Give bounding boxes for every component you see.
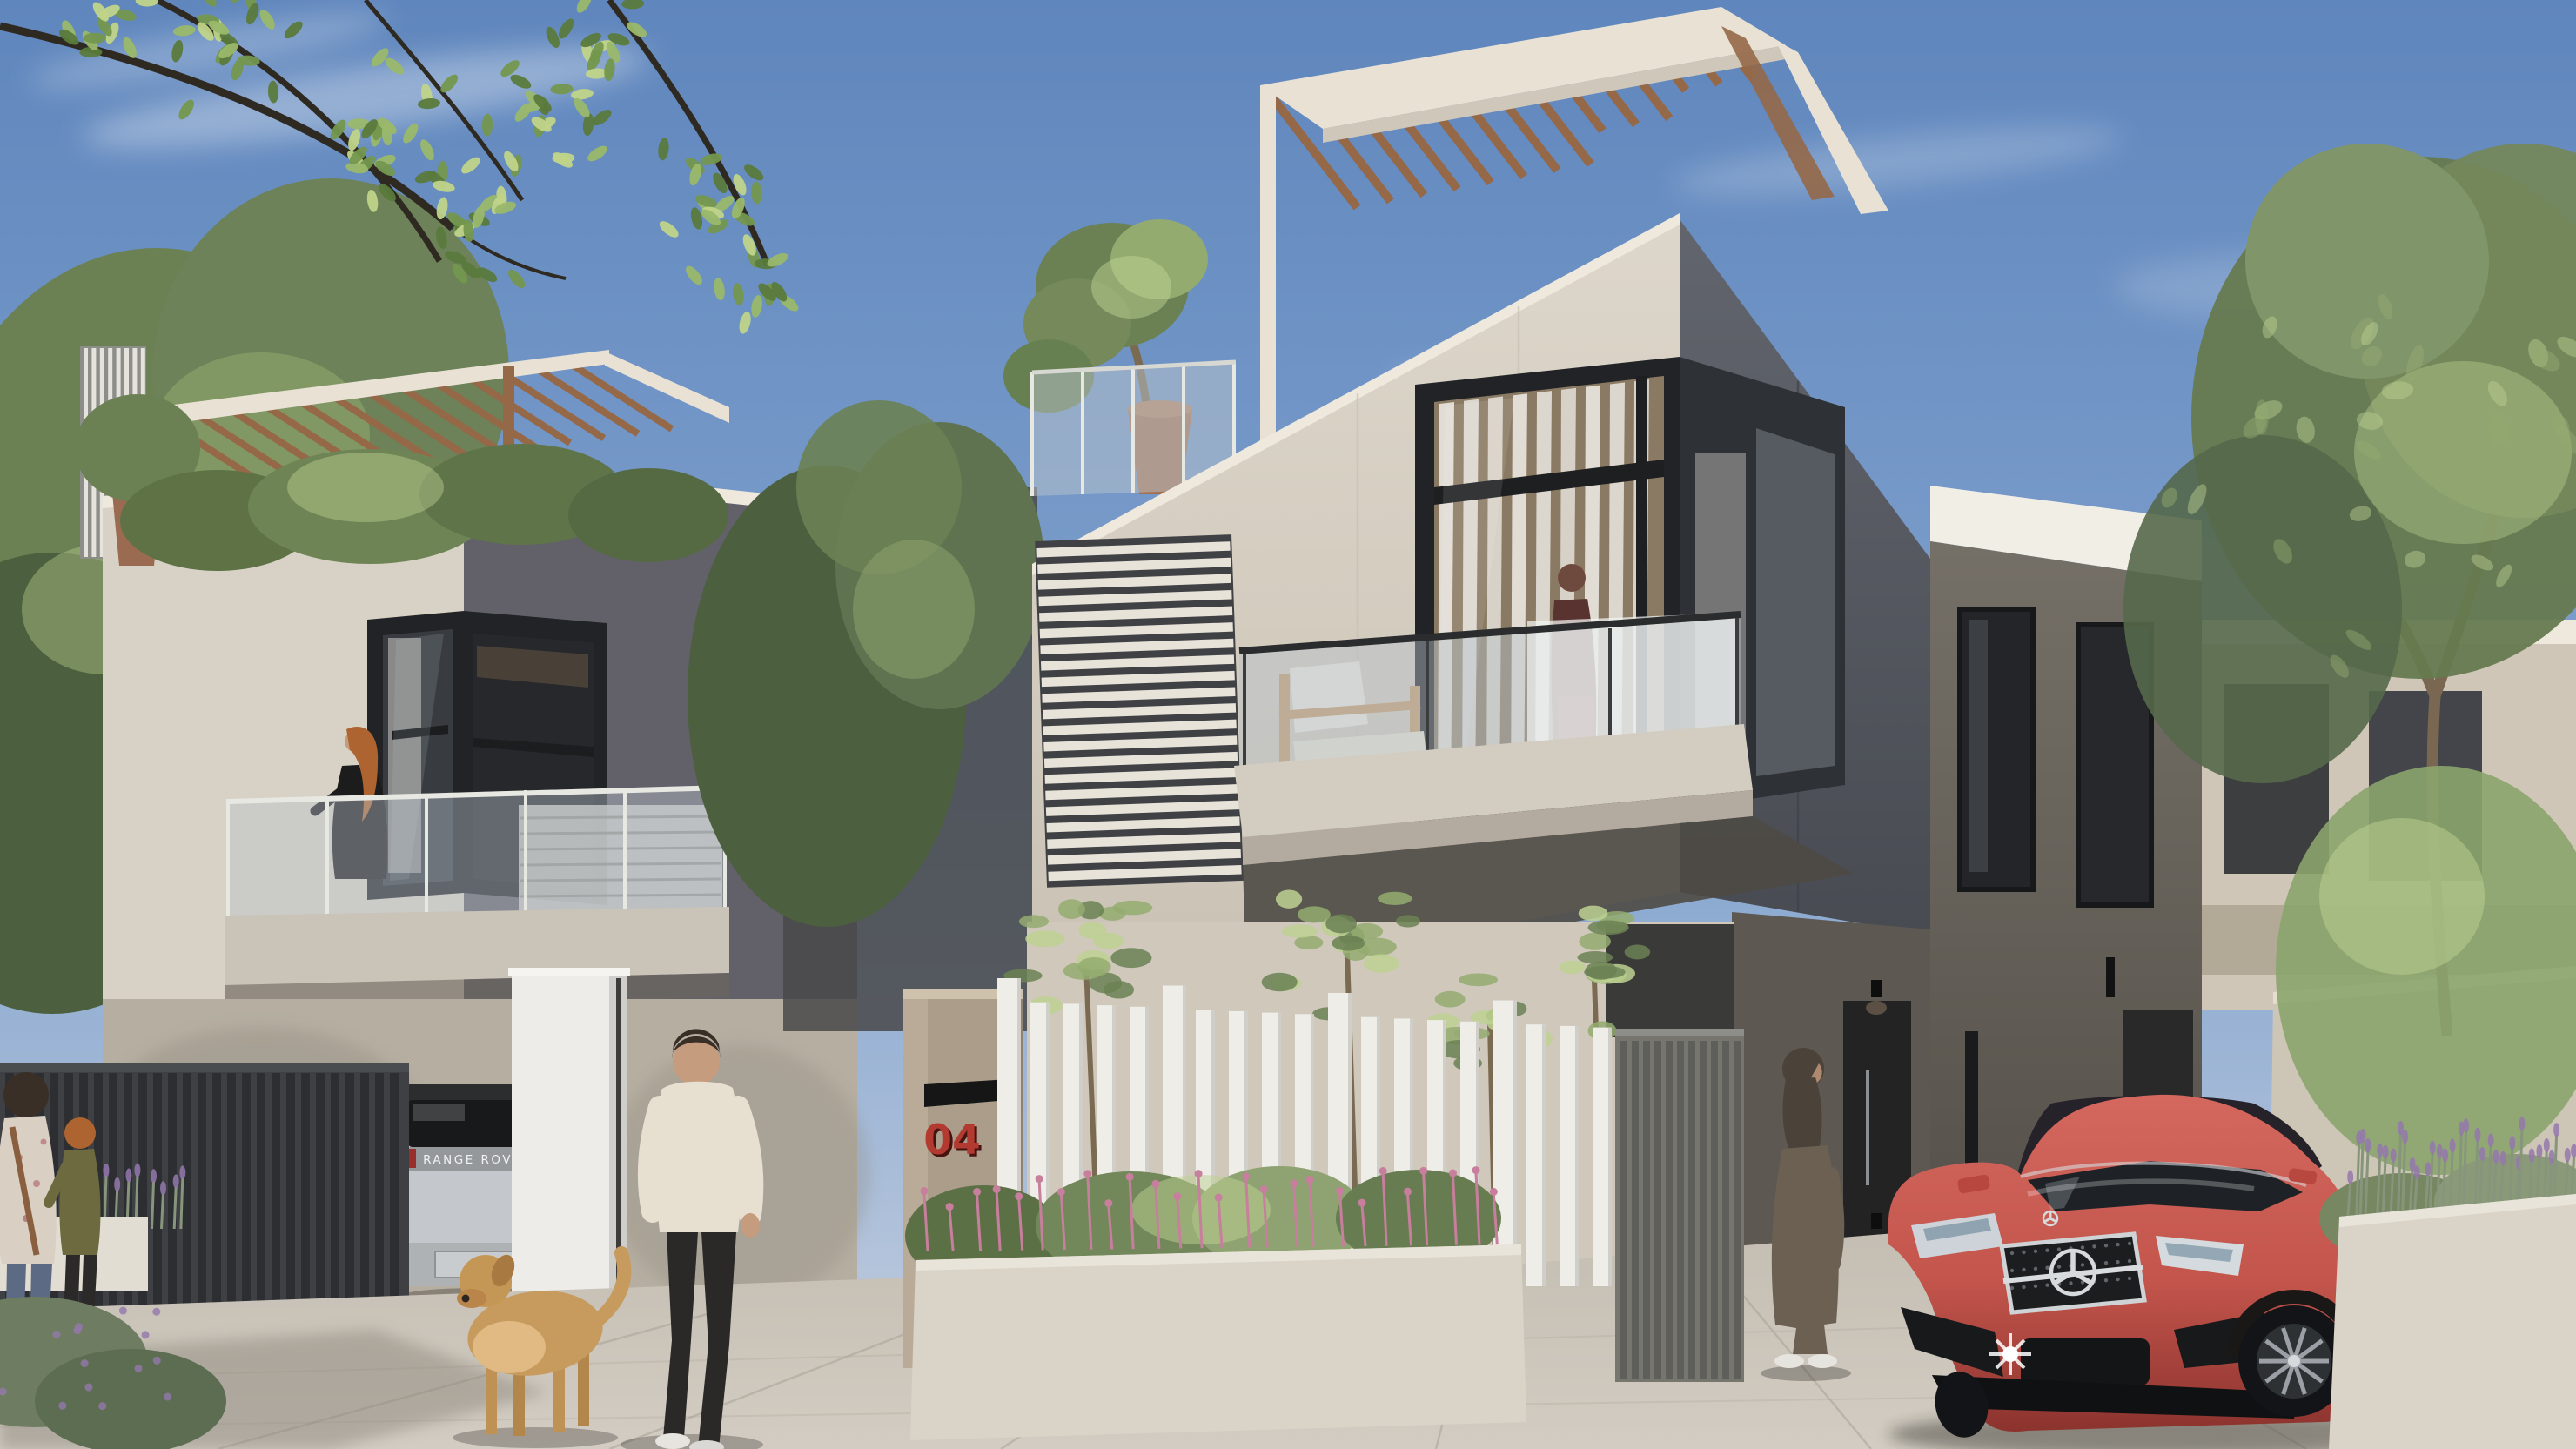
flower: [81, 1359, 89, 1367]
leaf-cluster: [1262, 973, 1298, 991]
grille-dot: [2045, 1266, 2049, 1270]
grille-dot: [2116, 1243, 2119, 1246]
flower: [52, 1331, 60, 1338]
planter-box: [2329, 1194, 2576, 1449]
flower: [1242, 1172, 1250, 1180]
scene-canvas: RANGE ROVER: [0, 0, 2576, 1449]
grille-dot: [2010, 1286, 2014, 1290]
leaf: [84, 33, 106, 44]
gate-slat: [1632, 1041, 1639, 1379]
gate-slat: [1666, 1041, 1673, 1379]
fence-slat-shade: [1575, 1026, 1579, 1286]
flower: [1151, 1180, 1159, 1188]
planter-box: [910, 1244, 1526, 1440]
fence-slat: [316, 1073, 325, 1305]
lavender-flower: [2565, 1148, 2571, 1162]
leaf-cluster: [2255, 399, 2269, 434]
grille-dot: [2128, 1259, 2131, 1263]
leaf-cluster: [1276, 889, 1302, 908]
lavender-flower: [2544, 1138, 2550, 1152]
main-louver-screen: [1035, 534, 1244, 888]
sneaker: [1774, 1354, 1804, 1368]
flower: [993, 1185, 1001, 1193]
flower: [152, 1308, 160, 1316]
lavender-flower: [2402, 1130, 2408, 1144]
grille-dot: [2092, 1244, 2096, 1248]
leaf-cluster: [1588, 920, 1629, 935]
lavender-flower: [2437, 1144, 2443, 1158]
flower: [84, 1384, 92, 1392]
flower: [1290, 1179, 1298, 1187]
lavender-flower: [2365, 1138, 2371, 1152]
lavender-stem: [181, 1177, 183, 1229]
fence-slat: [227, 1073, 236, 1305]
flower: [1336, 1187, 1344, 1195]
flower: [1358, 1199, 1366, 1207]
grille-dot: [2034, 1267, 2037, 1271]
grille-dot: [2104, 1244, 2108, 1247]
fence-slat-shade: [1513, 1001, 1517, 1287]
gray-slatted-gate: [1615, 1029, 1744, 1382]
fence-slat: [212, 1073, 221, 1305]
flower: [75, 1323, 83, 1331]
leaf-cluster: [1110, 948, 1151, 968]
lavender-flower: [103, 1164, 109, 1177]
lavender-flower: [173, 1174, 179, 1188]
gate-slat: [1677, 1041, 1684, 1379]
left-balcony: [225, 785, 729, 1011]
leaf-cluster: [1578, 951, 1613, 963]
lavender-flower: [2360, 1129, 2366, 1143]
lavender-flower: [2425, 1162, 2431, 1176]
leaf-cluster: [1584, 966, 1626, 979]
flower: [1104, 1199, 1112, 1207]
lavender-flower: [2509, 1136, 2515, 1150]
leaf-cluster: [1019, 915, 1049, 928]
flower: [153, 1357, 161, 1365]
grille-dot: [2069, 1281, 2072, 1285]
lavender-flower: [2383, 1145, 2389, 1159]
grille-dot: [2057, 1265, 2061, 1268]
gate-slat: [1643, 1041, 1650, 1379]
leaf-cluster: [1378, 892, 1412, 905]
flower: [1173, 1192, 1181, 1200]
lavender-flower: [151, 1169, 157, 1183]
flower: [164, 1393, 171, 1401]
flower: [1036, 1175, 1043, 1183]
lavender-flower: [160, 1181, 166, 1195]
person-shadow: [1761, 1365, 1851, 1381]
lavender-flower: [2488, 1133, 2494, 1147]
lavender-stem: [161, 1193, 163, 1229]
sneaker: [1808, 1354, 1837, 1368]
grille-dot: [2116, 1278, 2119, 1281]
lavender-flower: [134, 1164, 140, 1177]
leaf-cluster: [1077, 957, 1110, 976]
lavender-flower: [179, 1165, 185, 1179]
lavender-flower: [2493, 1150, 2499, 1164]
leaf-cluster: [1282, 925, 1318, 938]
flower: [1057, 1188, 1065, 1196]
balcony-glass: [228, 785, 727, 924]
leaf-cluster: [1025, 930, 1064, 947]
flower: [1472, 1166, 1479, 1174]
lavender-stem: [174, 1186, 176, 1229]
dog-snout: [457, 1289, 486, 1308]
grille-dot: [2057, 1247, 2061, 1251]
fence-slat: [183, 1073, 191, 1305]
lavender-flower: [2553, 1123, 2559, 1137]
flower: [98, 1402, 106, 1410]
grille-dot: [2010, 1269, 2014, 1272]
leaf-cluster: [1058, 899, 1085, 919]
sconce-glow: [1866, 1001, 1887, 1015]
flower: [58, 1402, 66, 1410]
leaf-cluster: [1364, 954, 1399, 972]
lavender-flower: [2414, 1165, 2420, 1179]
lavender-flower: [2347, 1170, 2353, 1184]
fence-slat: [272, 1073, 280, 1305]
gate-slat: [1734, 1041, 1741, 1379]
street-planter: [905, 1166, 1526, 1440]
lavender-flower: [2549, 1150, 2555, 1164]
grille-dot: [2022, 1251, 2025, 1254]
fence-slat: [360, 1073, 369, 1305]
gate-slat: [1654, 1041, 1661, 1379]
fence-cap: [0, 1063, 409, 1072]
head: [3, 1072, 49, 1117]
gate-cap: [1615, 1029, 1744, 1036]
grille-dot: [2116, 1260, 2119, 1264]
leaf-cluster: [1298, 906, 1331, 922]
flower: [1419, 1167, 1427, 1175]
fence-slat: [375, 1073, 384, 1305]
fence-slat: [390, 1073, 399, 1305]
flower: [1195, 1170, 1203, 1177]
reflection: [1969, 620, 1988, 872]
grille-dot: [2010, 1251, 2014, 1255]
leg: [578, 1352, 589, 1426]
flower: [142, 1331, 150, 1338]
leaf-cluster: [1435, 991, 1466, 1008]
flower: [1490, 1188, 1498, 1196]
sneaker: [655, 1433, 690, 1449]
sconce-icon: [1871, 1213, 1882, 1229]
grille-dot: [2104, 1278, 2108, 1282]
gate-slat: [1620, 1041, 1627, 1379]
leaf-cluster: [1579, 906, 1608, 922]
grille-dot: [2104, 1261, 2108, 1265]
flower: [135, 1365, 143, 1372]
grille-dot: [2022, 1268, 2025, 1271]
grille-dot: [2081, 1263, 2084, 1266]
fence-slat: [242, 1073, 251, 1305]
arm: [649, 1107, 660, 1211]
lavender-flower: [2474, 1128, 2480, 1142]
lavender-flower: [125, 1169, 131, 1183]
flower: [119, 1307, 127, 1315]
hub-cap: [2288, 1355, 2300, 1367]
grille-dot: [2081, 1245, 2084, 1249]
pillar-cap: [508, 968, 630, 976]
flower: [1379, 1167, 1387, 1175]
house-number: 04: [923, 1117, 980, 1164]
flower: [1083, 1170, 1091, 1177]
fence-slat: [331, 1073, 339, 1305]
leaf-cluster: [1325, 914, 1357, 933]
leaf-cluster: [1093, 933, 1124, 949]
flower: [1260, 1185, 1268, 1193]
intake: [2021, 1338, 2150, 1385]
lavender-flower: [2519, 1117, 2525, 1130]
fence-slat: [198, 1073, 206, 1305]
flower: [946, 1203, 954, 1211]
lavender-flower: [2500, 1151, 2506, 1165]
leaf-cluster: [1625, 944, 1650, 959]
lavender-flower: [2430, 1141, 2436, 1155]
balcony-slab: [225, 907, 729, 985]
lavender-flower: [2442, 1149, 2448, 1163]
fence-slat: [345, 1073, 354, 1305]
flower: [1404, 1188, 1412, 1196]
fence-slat-shade: [1542, 1024, 1546, 1286]
sconce-icon: [1871, 980, 1882, 997]
grille-dot: [2045, 1249, 2049, 1252]
grille-dot: [2022, 1285, 2025, 1289]
fence-slat: [286, 1073, 295, 1305]
glass-highlight: [413, 1104, 465, 1121]
flower: [921, 1187, 929, 1195]
fence-slat-shade: [1608, 1028, 1612, 1286]
flower: [973, 1188, 981, 1196]
gate-slat: [1700, 1041, 1707, 1379]
grille-dot: [2034, 1250, 2037, 1253]
gate-slat: [1688, 1041, 1695, 1379]
leaf-cluster: [1559, 961, 1585, 974]
grille-dot: [2128, 1277, 2131, 1280]
pergola-post: [1260, 85, 1276, 493]
lavender-stem: [152, 1181, 154, 1229]
lavender-flower: [2377, 1144, 2383, 1157]
lavender-flower: [114, 1177, 120, 1191]
lavender-flower: [2479, 1147, 2485, 1161]
flower: [1126, 1173, 1134, 1181]
grille-dot: [2045, 1284, 2049, 1287]
leaf-cluster: [1332, 936, 1365, 951]
dog-nose: [462, 1295, 470, 1303]
gate-slat: [1722, 1041, 1729, 1379]
head: [64, 1117, 96, 1149]
lavender-flower: [2450, 1138, 2456, 1152]
leaf-cluster: [1396, 915, 1420, 927]
gate-slat: [1711, 1041, 1718, 1379]
leaf-cluster: [1579, 933, 1611, 950]
flower: [1449, 1170, 1457, 1177]
dog-shadow: [453, 1427, 618, 1448]
leaf-cluster: [1104, 981, 1134, 998]
sconce-icon: [2106, 957, 2115, 997]
leaf-cluster: [1459, 973, 1498, 986]
lavender-flower: [2529, 1149, 2535, 1163]
sky-reflection: [1756, 428, 1835, 776]
grille-dot: [2034, 1285, 2037, 1288]
lavender-flower: [2391, 1148, 2397, 1162]
floral-top: [0, 1116, 57, 1264]
fence-slat: [257, 1073, 265, 1305]
fence-slat: [301, 1073, 310, 1305]
flower: [1015, 1192, 1023, 1200]
lavender-flower: [2463, 1118, 2469, 1132]
grille-dot: [2128, 1242, 2131, 1245]
flower: [1305, 1176, 1313, 1184]
gray-gate-slats: [1620, 1041, 1741, 1379]
arm: [1831, 1175, 1836, 1264]
dog-chest: [473, 1321, 546, 1373]
lavender-flower: [2536, 1144, 2542, 1158]
scarf-drape: [1783, 1077, 1822, 1150]
hand: [741, 1213, 760, 1238]
flower: [1215, 1194, 1223, 1202]
